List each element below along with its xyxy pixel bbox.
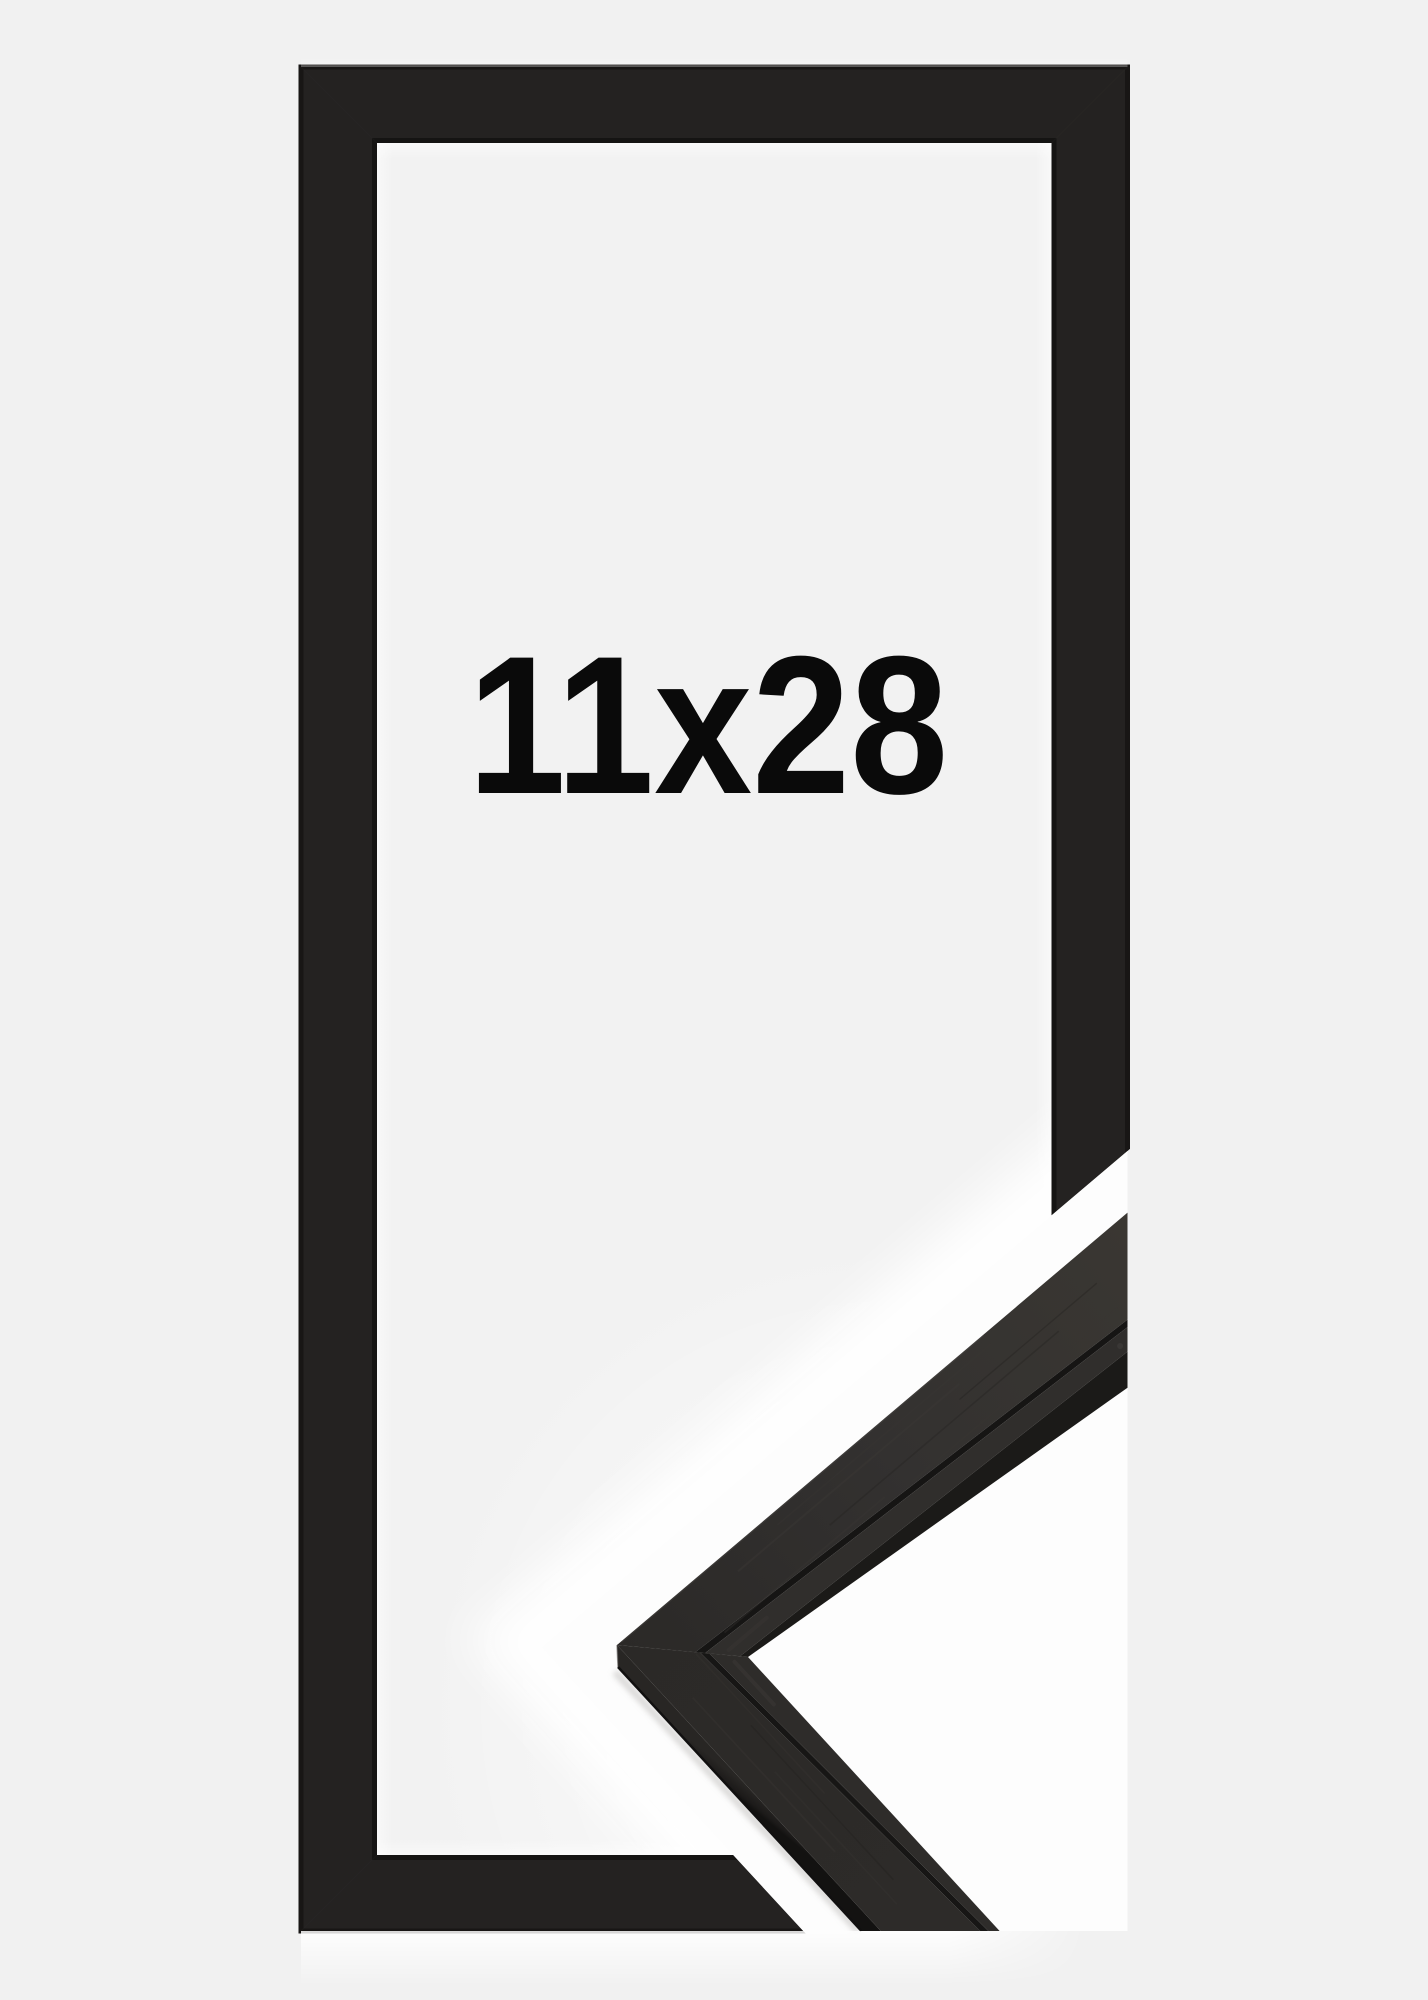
svg-text:11x28: 11x28 — [468, 615, 948, 835]
